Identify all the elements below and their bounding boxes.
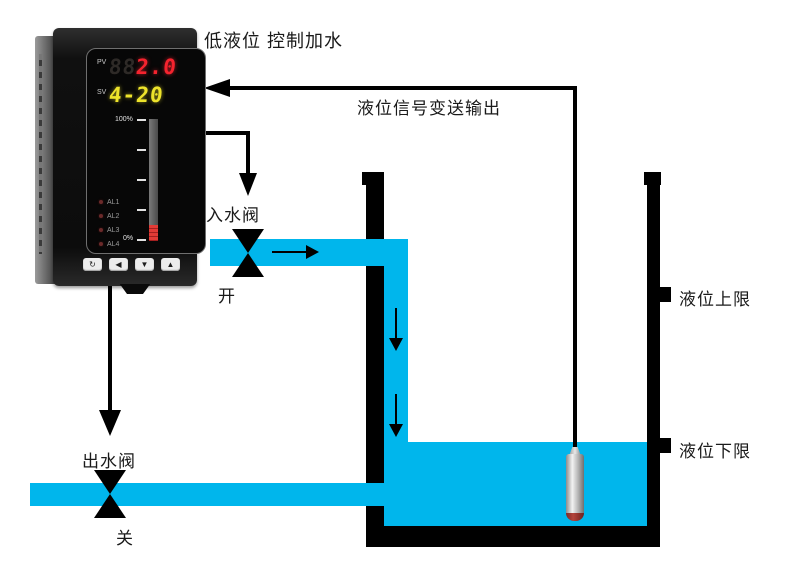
tank-right-wall-cap	[644, 172, 661, 185]
lower-limit-label: 液位下限	[679, 437, 751, 462]
tank-left-wall-cap	[362, 172, 384, 185]
tank-bottom	[366, 526, 660, 547]
bargraph-tick	[137, 239, 146, 241]
alarm-led-2: AL2	[99, 211, 119, 221]
led-dot-icon	[99, 228, 103, 232]
alarm-led-4: AL4	[99, 239, 119, 249]
tank-right-wall	[647, 172, 660, 547]
bargraph-0-label: 0%	[123, 235, 133, 242]
control-line-outlet-vertical	[108, 286, 112, 410]
bargraph-tick	[137, 149, 146, 151]
signal-line-vertical	[573, 86, 577, 448]
outlet-pipe	[30, 483, 384, 506]
pv-label: PV	[97, 59, 106, 66]
bargraph-column	[149, 119, 158, 241]
bargraph-tick	[137, 119, 146, 121]
bargraph-tick	[137, 209, 146, 211]
pv-display: 882.0	[109, 55, 177, 79]
sv-value: 4-20	[108, 83, 165, 107]
level-sensor-probe	[566, 454, 584, 515]
led-label: AL2	[107, 213, 119, 220]
bargraph-100-label: 100%	[115, 116, 133, 123]
control-arrow-inlet-icon	[239, 173, 257, 196]
level-controller: PV 882.0 SV 4-20 100% 0%	[35, 28, 197, 294]
inlet-valve-icon-bottom	[232, 253, 264, 277]
diagram-title: 低液位 控制加水	[204, 27, 343, 53]
lower-limit-marker	[654, 438, 671, 453]
meter-button-left: ◀	[109, 258, 128, 271]
flow-arrow-down2-icon	[389, 424, 403, 437]
outlet-valve-label: 出水阀	[82, 447, 136, 472]
upper-limit-marker	[654, 287, 671, 302]
bargraph-tick	[137, 179, 146, 181]
led-dot-icon	[99, 200, 103, 204]
sv-label: SV	[97, 89, 106, 96]
control-line-inlet-vertical	[246, 131, 250, 173]
flow-arrow-down1-icon	[389, 338, 403, 351]
outlet-valve-icon-bottom	[94, 494, 126, 518]
pv-ghost-digits: 88	[108, 55, 138, 79]
inlet-valve-state: 开	[218, 282, 236, 307]
meter-bottom-tab	[115, 284, 155, 294]
led-dot-icon	[99, 214, 103, 218]
signal-arrow-left-icon	[204, 79, 230, 97]
bargraph-fill	[149, 225, 158, 241]
flow-arrow-right-line	[272, 251, 306, 253]
meter-button-set: ↻	[83, 258, 102, 271]
led-label: AL4	[107, 241, 119, 248]
meter-button-row: ↻ ◀ ▼ ▲	[83, 258, 180, 271]
led-label: AL3	[107, 227, 119, 234]
inlet-valve-label: 入水阀	[206, 201, 260, 226]
meter-display-face: PV 882.0 SV 4-20 100% 0%	[86, 48, 206, 254]
flow-arrow-down2-line	[395, 394, 397, 424]
control-arrow-outlet-icon	[99, 410, 121, 436]
meter-button-down: ▼	[135, 258, 154, 271]
flow-arrow-down1-line	[395, 308, 397, 338]
sv-display: 4-20	[109, 83, 164, 107]
outlet-valve-icon	[94, 470, 126, 494]
upper-limit-label: 液位上限	[679, 285, 751, 310]
inlet-valve-icon	[232, 229, 264, 253]
pv-value: 2.0	[135, 55, 178, 79]
outlet-valve-state: 关	[116, 524, 134, 549]
tank-water	[384, 442, 647, 526]
flow-arrow-right-icon	[306, 245, 319, 259]
alarm-led-1: AL1	[99, 197, 119, 207]
alarm-led-3: AL3	[99, 225, 119, 235]
signal-line-horizontal	[228, 86, 577, 90]
meter-button-up: ▲	[161, 258, 180, 271]
diagram-canvas: 低液位 控制加水 液位信号变送输出 入水阀 开 出水阀 关 液位上限 液位下限 …	[0, 0, 790, 566]
signal-output-label: 液位信号变送输出	[357, 94, 501, 119]
meter-body: PV 882.0 SV 4-20 100% 0%	[53, 28, 197, 286]
led-dot-icon	[99, 242, 103, 246]
led-label: AL1	[107, 199, 119, 206]
